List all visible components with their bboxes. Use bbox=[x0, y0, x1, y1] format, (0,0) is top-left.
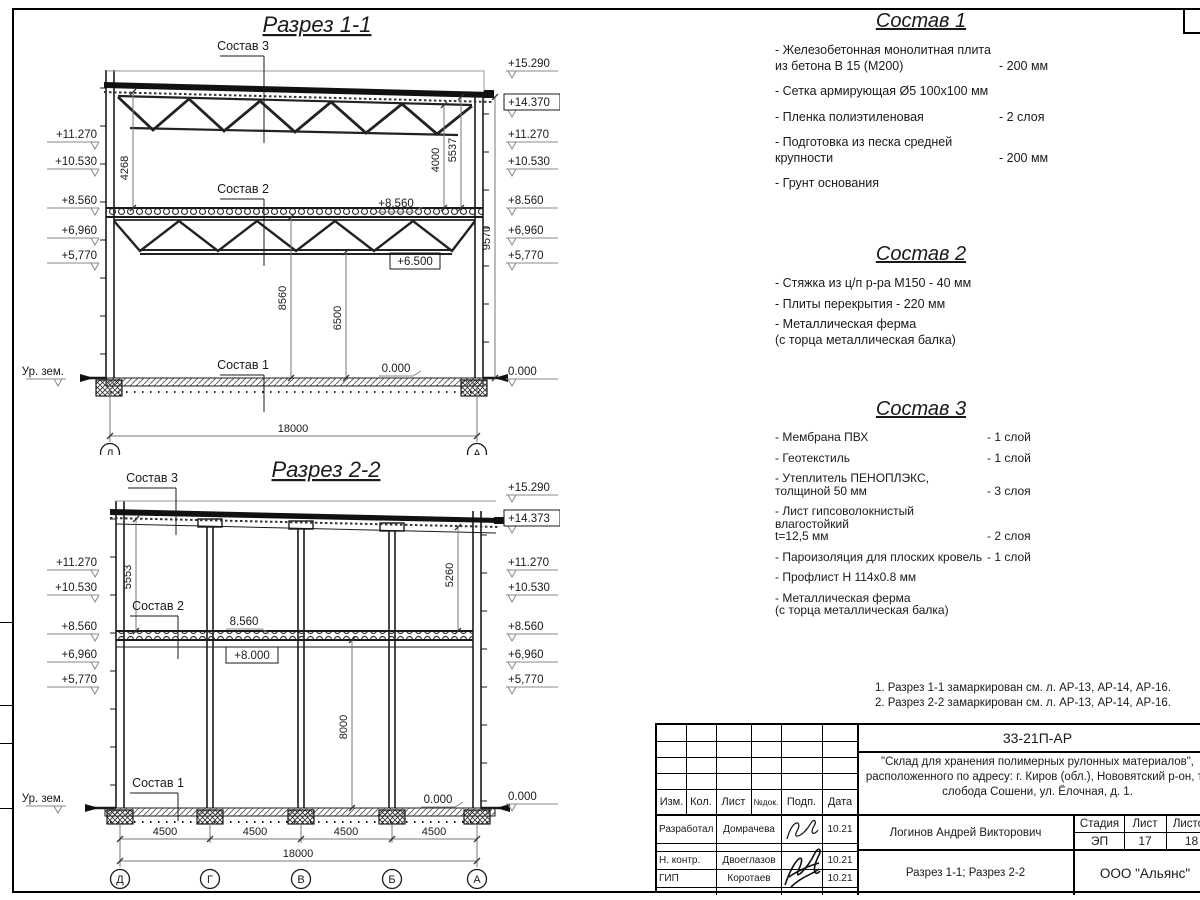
section-1-1-drawing: Разрез 1-1 bbox=[0, 0, 560, 455]
span-dim-label: 18000 bbox=[278, 423, 309, 435]
dim-label: 6500 bbox=[332, 306, 344, 330]
level-label: +6.500 bbox=[397, 256, 433, 268]
stage-value: ЭП bbox=[1075, 832, 1124, 849]
s2-elevations-left: +11.270 +10.530 +8.560 +6,960 +5,770 Ур.… bbox=[22, 557, 99, 813]
axis-bubble-label: А bbox=[473, 874, 481, 886]
sostav1-leader-label: Состав 1 bbox=[132, 776, 184, 790]
level-label: 0.000 bbox=[382, 363, 411, 375]
elevation-label: +6,960 bbox=[508, 649, 544, 661]
level-label: 0.000 bbox=[424, 794, 453, 806]
axis-bubble-label: А bbox=[473, 448, 481, 455]
sheet-label: Лист bbox=[1124, 815, 1166, 832]
project-line: "Склад для хранения полимерных рулонных … bbox=[858, 754, 1200, 769]
axis-bubble-label: Д bbox=[106, 448, 114, 455]
elevation-label: +10.530 bbox=[55, 582, 97, 594]
list-item: - Подготовка из песка средней крупности-… bbox=[775, 135, 1067, 166]
sheet-content: Разрез 1-1; Разрез 2-2 bbox=[858, 851, 1073, 895]
project-line: расположенного по адресу: г. Киров (обл.… bbox=[858, 769, 1200, 784]
stage-label: Стадия bbox=[1075, 815, 1124, 832]
tb-role: ГИП bbox=[659, 869, 716, 887]
elevation-label: +14.370 bbox=[508, 97, 550, 109]
span-dim-label: 4500 bbox=[422, 826, 446, 838]
s1-walls bbox=[100, 70, 489, 378]
span-dim-label: 4500 bbox=[243, 826, 267, 838]
elevation-label: +10.530 bbox=[508, 156, 550, 168]
tb-date: 10.21 bbox=[822, 851, 858, 869]
sostav3-panel: Состав 3 - Мембрана ПВХ- 1 слой - Геотек… bbox=[775, 398, 1067, 625]
note-line: 1. Разрез 1-1 замаркирован см. л. АР-13,… bbox=[875, 681, 1171, 696]
sheet-number: 17 bbox=[1124, 832, 1166, 849]
axis-bubble-label: Б bbox=[388, 874, 395, 886]
tb-col-podp: Подп. bbox=[781, 789, 822, 814]
tb-col-ndok: №док. bbox=[751, 789, 781, 814]
s2-axes: Д Г В Б А bbox=[111, 870, 487, 889]
list-item: - Пленка полиэтиленовая- 2 слоя bbox=[775, 110, 1067, 126]
span-dim-label: 4500 bbox=[334, 826, 358, 838]
sostav3-leader-label: Состав 3 bbox=[126, 471, 178, 485]
tb-date: 10.21 bbox=[822, 815, 858, 843]
sheets-total: 18 bbox=[1166, 832, 1200, 849]
note-line: 2. Разрез 2-2 замаркирован см. л. АР-13,… bbox=[875, 696, 1171, 711]
corner-code-box bbox=[1183, 9, 1200, 34]
s1-roof-truss bbox=[118, 96, 472, 135]
elevation-label: +8.560 bbox=[62, 621, 98, 633]
tb-col-data: Дата bbox=[822, 789, 858, 814]
dim-label: 5537 bbox=[447, 138, 459, 162]
elevation-label: +8.560 bbox=[62, 195, 98, 207]
s2-walls-columns bbox=[110, 501, 496, 808]
section-1-1-title: Разрез 1-1 bbox=[262, 12, 371, 37]
tb-date: 10.21 bbox=[822, 869, 858, 887]
elevation-label: 0.000 bbox=[508, 791, 537, 803]
tb-col-list: Лист bbox=[716, 789, 751, 814]
list-item: - Железобетонная монолитная плита из бет… bbox=[775, 43, 1067, 74]
doc-code: 33-21П-АР bbox=[858, 725, 1200, 751]
axis-bubble-label: В bbox=[297, 874, 304, 886]
level-label: +8.560 bbox=[378, 198, 414, 210]
tb-name: Двоеглазов bbox=[718, 851, 780, 869]
elevation-label: +6,960 bbox=[62, 225, 98, 237]
elevation-label: +8.560 bbox=[508, 195, 544, 207]
s2-mid-floor bbox=[116, 631, 473, 647]
tb-name: Коротаев bbox=[718, 869, 780, 887]
s2-inner-labels: Состав 3 Состав 2 Состав 1 8.560 +8.000 … bbox=[126, 471, 463, 821]
notes: 1. Разрез 1-1 замаркирован см. л. АР-13,… bbox=[875, 681, 1171, 710]
tb-col-kol: Кол. bbox=[686, 789, 716, 814]
elevation-label: +11.270 bbox=[508, 557, 549, 569]
sostav1-leader-label: Состав 1 bbox=[217, 358, 269, 372]
s1-floor-truss bbox=[114, 220, 475, 254]
tb-col-izm: Изм. bbox=[657, 789, 686, 814]
elevation-label: +6,960 bbox=[62, 649, 98, 661]
elevation-label: +8.560 bbox=[508, 621, 544, 633]
dim-label: 8000 bbox=[338, 715, 350, 739]
dim-label: 9570 bbox=[481, 226, 493, 250]
section-2-2-drawing: Разрез 2-2 bbox=[0, 455, 560, 900]
elevation-label: +14.373 bbox=[508, 513, 550, 525]
list-item: - Геотекстиль- 1 слой bbox=[775, 452, 1067, 465]
span-dim-label: 18000 bbox=[283, 848, 314, 860]
tb-role: Н. контр. bbox=[659, 851, 716, 869]
dim-label: 5553 bbox=[122, 565, 134, 589]
list-item: - Мембрана ПВХ- 1 слой bbox=[775, 431, 1067, 444]
drawing-sheet: { "s1": { "title": "Разрез 1-1", "elev_l… bbox=[0, 0, 1200, 900]
elevation-label: +11.270 bbox=[56, 557, 97, 569]
dim-label: 4268 bbox=[119, 156, 131, 180]
dim-label: 4000 bbox=[430, 148, 442, 172]
section-2-2-title: Разрез 2-2 bbox=[271, 457, 380, 482]
s1-dim-texts: 4268 4000 5537 9570 8560 6500 18000 bbox=[119, 138, 493, 435]
list-item: - Лист гипсоволокнистый влагостойкий t=1… bbox=[775, 505, 1067, 543]
elevation-label: 0.000 bbox=[508, 366, 537, 378]
axis-bubble-label: Г bbox=[207, 874, 213, 886]
list-item: - Сетка армирующая Ø5 100х100 мм bbox=[775, 84, 1067, 100]
ground-level-label: Ур. зем. bbox=[22, 366, 64, 378]
sostav2-title: Состав 2 bbox=[775, 243, 1067, 266]
sostav2-leader-label: Состав 2 bbox=[132, 599, 184, 613]
elevation-label: +5,770 bbox=[508, 250, 544, 262]
span-dim-label: 4500 bbox=[153, 826, 177, 838]
s1-elevations-left: +11.270 +10.530 +8.560 +6,960 +5,770 Ур.… bbox=[22, 129, 99, 386]
project-line: слобода Сошени, ул. Ёлочная, д. 1. bbox=[858, 784, 1200, 799]
s2-elevations-right: +15.290 +14.373 +11.270 +10.530 +8.560 +… bbox=[504, 482, 560, 811]
elevation-label: +11.270 bbox=[508, 129, 549, 141]
sostav3-title: Состав 3 bbox=[775, 398, 1067, 421]
elevation-label: +5,770 bbox=[62, 674, 98, 686]
sostav3-leader-label: Состав 3 bbox=[217, 39, 269, 53]
elevation-label: +6,960 bbox=[508, 225, 544, 237]
level-label: 8.560 bbox=[230, 616, 259, 628]
sostav2-leader-label: Состав 2 bbox=[217, 182, 269, 196]
dim-label: 5260 bbox=[444, 563, 456, 587]
tb-name: Домрачева bbox=[718, 815, 780, 843]
elevation-label: +11.270 bbox=[56, 129, 97, 141]
list-item: - Металлическая ферма (с торца металличе… bbox=[775, 592, 1067, 617]
company-name: ООО "Альянс" bbox=[1073, 851, 1200, 895]
list-item: - Профлист Н 114х0.8 мм bbox=[775, 571, 1067, 584]
list-item: - Стяжка из ц/п р-ра М150 - 40 мм bbox=[775, 276, 1067, 292]
elevation-label: +10.530 bbox=[55, 156, 97, 168]
elevation-label: +15.290 bbox=[508, 482, 550, 494]
dim-label: 8560 bbox=[277, 286, 289, 310]
list-item: - Грунт основания bbox=[775, 176, 1067, 192]
elevation-label: +10.530 bbox=[508, 582, 550, 594]
s1-ground bbox=[80, 374, 508, 396]
s1-roof bbox=[104, 82, 494, 102]
list-item: - Утеплитель ПЕНОПЛЭКС, толщиной 50 мм- … bbox=[775, 472, 1067, 497]
elevation-label: +5,770 bbox=[62, 250, 98, 262]
elevation-label: +5,770 bbox=[508, 674, 544, 686]
level-label: +8.000 bbox=[234, 650, 270, 662]
ground-level-label: Ур. зем. bbox=[22, 793, 64, 805]
sostav1-title: Состав 1 bbox=[775, 10, 1067, 33]
s1-mid-floor bbox=[106, 208, 483, 217]
sostav1-panel: Состав 1 - Железобетонная монолитная пли… bbox=[775, 10, 1067, 202]
axis-bubble-label: Д bbox=[116, 874, 124, 886]
list-item: - Пароизоляция для плоских кровель- 1 сл… bbox=[775, 551, 1067, 564]
list-item: - Металлическая ферма (с торца металличе… bbox=[775, 317, 1067, 348]
sheets-label: Листов bbox=[1166, 815, 1200, 832]
s1-elevations-right: +15.290 +14.370 +11.270 +10.530 +8.560 +… bbox=[504, 58, 560, 386]
title-block: Изм. Кол. Лист №док. Подп. Дата Разработ… bbox=[655, 723, 1200, 893]
tb-role: Разработал bbox=[659, 815, 716, 843]
elevation-label: +15.290 bbox=[508, 58, 550, 70]
list-item: - Плиты перекрытия - 220 мм bbox=[775, 297, 1067, 313]
signature-marks bbox=[781, 813, 822, 893]
author-name: Логинов Андрей Викторович bbox=[858, 816, 1073, 849]
s1-dim-lines bbox=[110, 92, 495, 442]
s1-axes: Д А bbox=[101, 444, 487, 456]
sostav2-panel: Состав 2 - Стяжка из ц/п р-ра М150 - 40 … bbox=[775, 243, 1067, 353]
